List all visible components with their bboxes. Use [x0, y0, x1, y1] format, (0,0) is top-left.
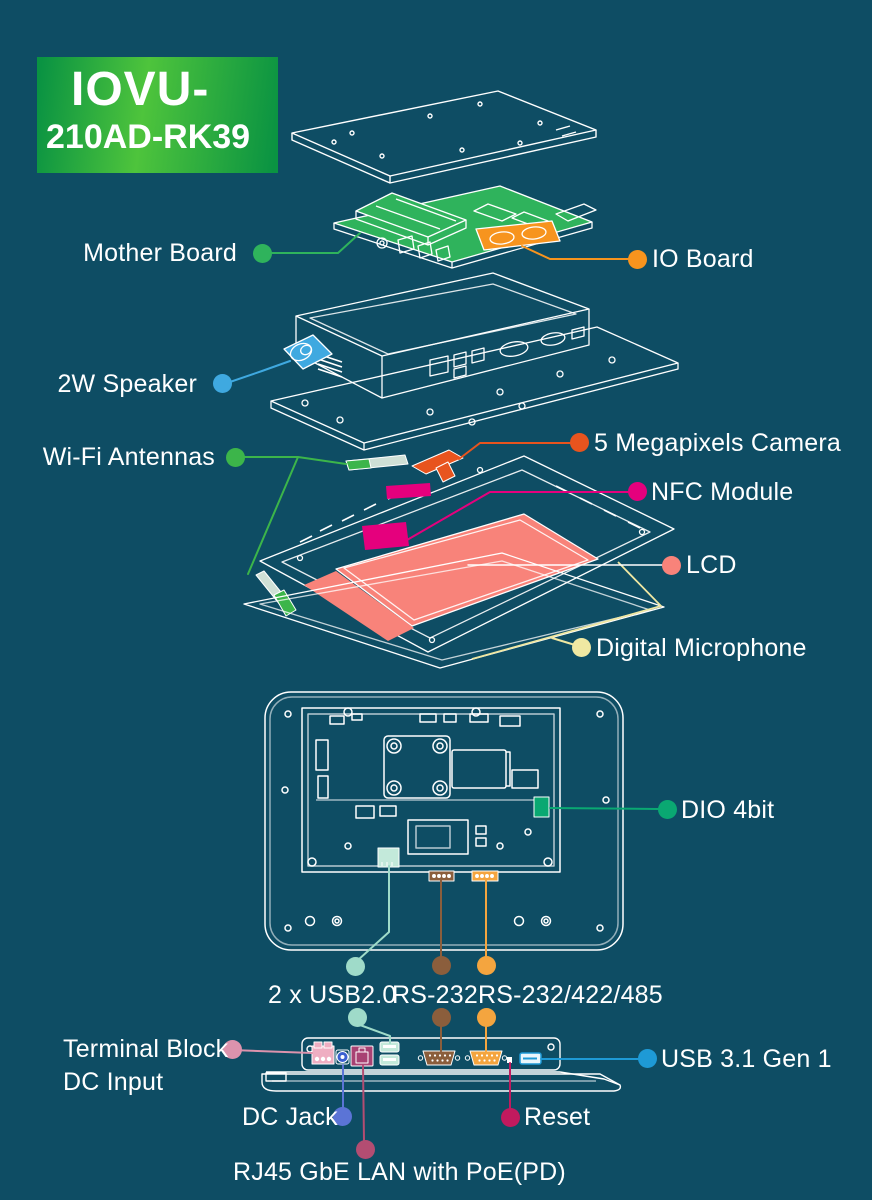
- io-board-dot: [628, 250, 647, 269]
- camera-leader: [459, 443, 572, 459]
- label-terminal-line2: DC Input: [63, 1066, 228, 1099]
- wifi-dot: [226, 448, 245, 467]
- label-speaker: 2W Speaker: [57, 368, 197, 400]
- label-microphone: Digital Microphone: [596, 632, 807, 664]
- camera-dot: [570, 433, 589, 452]
- label-io-board: IO Board: [652, 243, 754, 275]
- rj45-port: [351, 1046, 373, 1066]
- microphone-dot: [572, 638, 591, 657]
- dio-connector: [534, 797, 549, 817]
- model-name-line1: IOVU-: [37, 57, 278, 117]
- motherboard-art: [334, 186, 596, 268]
- rs422-dot-top: [477, 956, 496, 975]
- chassis-art: [271, 273, 678, 450]
- label-rs422: RS-232/422/485: [478, 979, 663, 1011]
- label-camera: 5 Megapixels Camera: [594, 427, 841, 459]
- label-rj45: RJ45 GbE LAN with PoE(PD): [233, 1156, 566, 1188]
- label-dc-jack: DC Jack: [242, 1101, 338, 1133]
- rs422-port: [465, 1051, 506, 1065]
- dio-leader: [550, 808, 658, 809]
- usb2-connector-rear: [378, 848, 399, 867]
- reset-button: [507, 1057, 512, 1063]
- dc-jack-port: [336, 1050, 349, 1064]
- model-name-line2: 210AD-RK39: [37, 117, 278, 157]
- speaker-leader: [230, 361, 290, 382]
- product-diagram-page: IOVU- 210AD-RK39 Mother Board IO Board 2…: [0, 0, 872, 1200]
- usb2-dot-top: [346, 957, 365, 976]
- label-dio: DIO 4bit: [681, 794, 774, 826]
- label-wifi: Wi-Fi Antennas: [43, 441, 215, 473]
- label-usb31: USB 3.1 Gen 1: [661, 1043, 832, 1075]
- rj45-leader: [363, 1066, 364, 1141]
- label-lcd: LCD: [686, 549, 737, 581]
- speaker-dot: [213, 374, 232, 393]
- wifi-leader: [242, 457, 346, 574]
- rear-view-art: [265, 692, 623, 950]
- label-rs232: RS-232: [392, 979, 478, 1011]
- rs232-dot-top: [432, 956, 451, 975]
- reset-dot: [501, 1108, 520, 1127]
- mother-board-leader: [268, 233, 360, 253]
- mother-board-dot: [253, 244, 272, 263]
- terminal-leader: [232, 1050, 312, 1053]
- lcd-dot: [662, 556, 681, 575]
- label-nfc: NFC Module: [651, 476, 793, 508]
- io-board-leader: [522, 246, 630, 259]
- label-usb2: 2 x USB2.0: [268, 979, 396, 1011]
- camera-art: [412, 450, 463, 482]
- label-reset: Reset: [524, 1101, 590, 1133]
- terminal-block-port: [312, 1042, 334, 1064]
- model-badge: IOVU- 210AD-RK39: [37, 57, 278, 173]
- nfc-dot: [628, 482, 647, 501]
- label-terminal-line1: Terminal Block: [63, 1033, 228, 1066]
- label-mother-board: Mother Board: [83, 237, 237, 269]
- back-cover-art: [292, 91, 596, 183]
- rs232-port: [418, 1051, 459, 1065]
- label-terminal-block: Terminal Block DC Input: [63, 1033, 228, 1099]
- dio-dot: [658, 800, 677, 819]
- speaker-art: [284, 335, 332, 369]
- usb31-dot: [638, 1049, 657, 1068]
- usb2-ports: [380, 1042, 399, 1065]
- usb31-port: [520, 1053, 541, 1064]
